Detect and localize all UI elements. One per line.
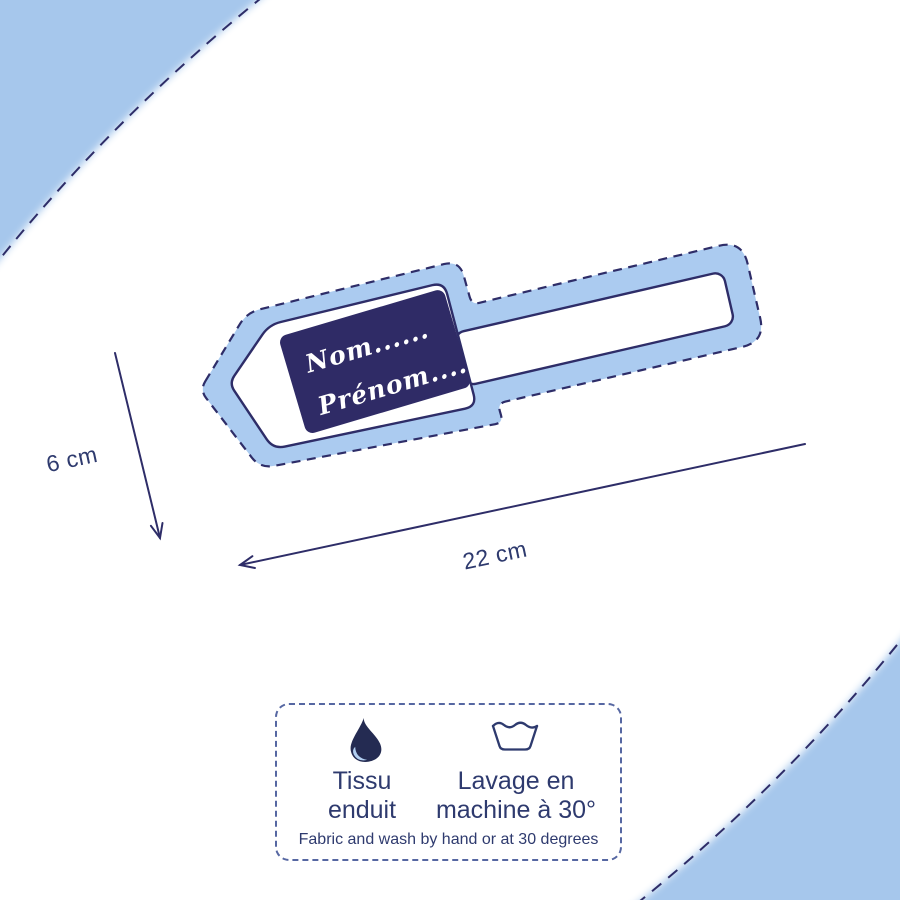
care-instructions-panel: Tissu enduit Lavage en machine à 30° Fab…	[275, 703, 622, 861]
product-illustration: Nom...... Prénom.... 6 cm 22 cm	[0, 0, 900, 900]
water-drop-icon	[347, 716, 383, 764]
care-footnote: Fabric and wash by hand or at 30 degrees	[277, 831, 620, 849]
machine-wash-label: Lavage en machine à 30°	[415, 767, 617, 825]
wash-basin-icon	[490, 716, 540, 754]
